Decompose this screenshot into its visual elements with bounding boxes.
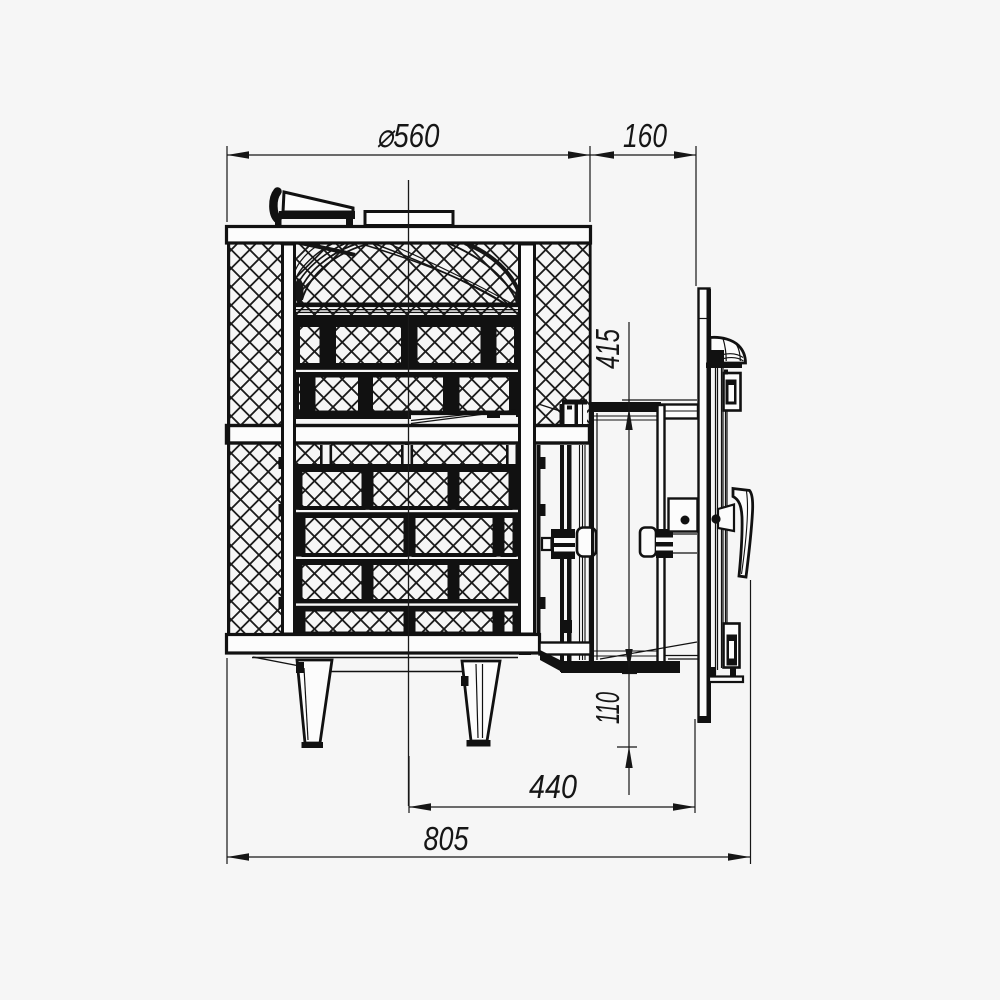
svg-text:160: 160: [623, 117, 668, 154]
svg-text:⌀560: ⌀560: [377, 117, 441, 154]
svg-text:440: 440: [529, 768, 578, 805]
svg-text:110: 110: [589, 692, 626, 724]
svg-text:805: 805: [424, 820, 470, 857]
svg-text:415: 415: [589, 329, 626, 369]
